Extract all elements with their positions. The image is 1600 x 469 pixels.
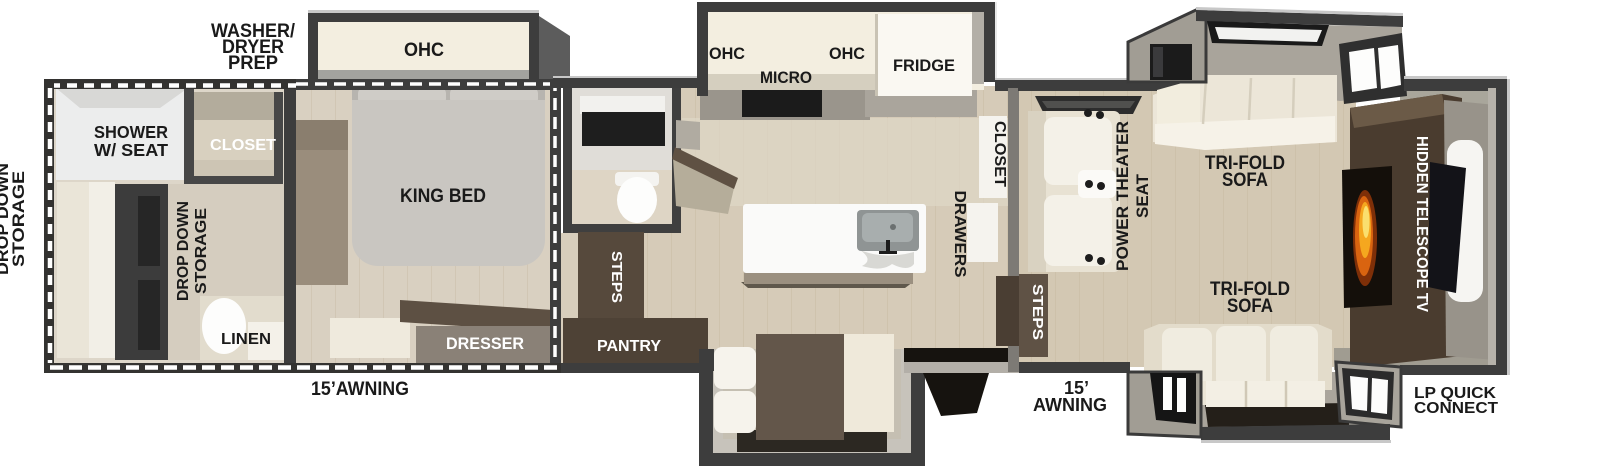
svg-text:MICRO: MICRO xyxy=(760,68,812,87)
svg-text:W/ SEAT: W/ SEAT xyxy=(94,140,168,160)
svg-text:FRIDGE: FRIDGE xyxy=(893,56,955,75)
svg-text:CLOSET: CLOSET xyxy=(210,137,277,154)
svg-text:KING BED: KING BED xyxy=(400,186,486,207)
svg-text:SOFA: SOFA xyxy=(1227,296,1273,317)
svg-text:OHC: OHC xyxy=(829,44,865,63)
svg-text:STORAGE: STORAGE xyxy=(9,171,28,267)
svg-text:PREP: PREP xyxy=(228,53,278,74)
svg-text:STORAGE: STORAGE xyxy=(193,208,210,294)
svg-text:STEPS: STEPS xyxy=(1029,284,1046,340)
svg-text:DROP DOWN: DROP DOWN xyxy=(175,201,192,301)
svg-text:SEAT: SEAT xyxy=(1134,174,1152,218)
svg-text:15’AWNING: 15’AWNING xyxy=(311,379,409,400)
svg-text:CLOSET: CLOSET xyxy=(991,121,1008,187)
svg-text:OHC: OHC xyxy=(709,44,745,63)
svg-text:AWNING: AWNING xyxy=(1033,395,1107,415)
svg-text:DRAWERS: DRAWERS xyxy=(951,191,968,278)
svg-text:POWER THEATER: POWER THEATER xyxy=(1114,121,1132,271)
svg-text:LINEN: LINEN xyxy=(221,331,271,348)
svg-text:SOFA: SOFA xyxy=(1222,170,1268,191)
svg-text:SHOWER: SHOWER xyxy=(94,122,168,142)
svg-text:STEPS: STEPS xyxy=(608,251,625,303)
svg-text:HIDDEN TELESCOPE TV: HIDDEN TELESCOPE TV xyxy=(1413,136,1430,312)
svg-text:PANTRY: PANTRY xyxy=(597,338,661,355)
svg-text:CONNECT: CONNECT xyxy=(1414,400,1499,417)
svg-text:OHC: OHC xyxy=(404,40,444,61)
svg-text:DRESSER: DRESSER xyxy=(446,334,524,353)
